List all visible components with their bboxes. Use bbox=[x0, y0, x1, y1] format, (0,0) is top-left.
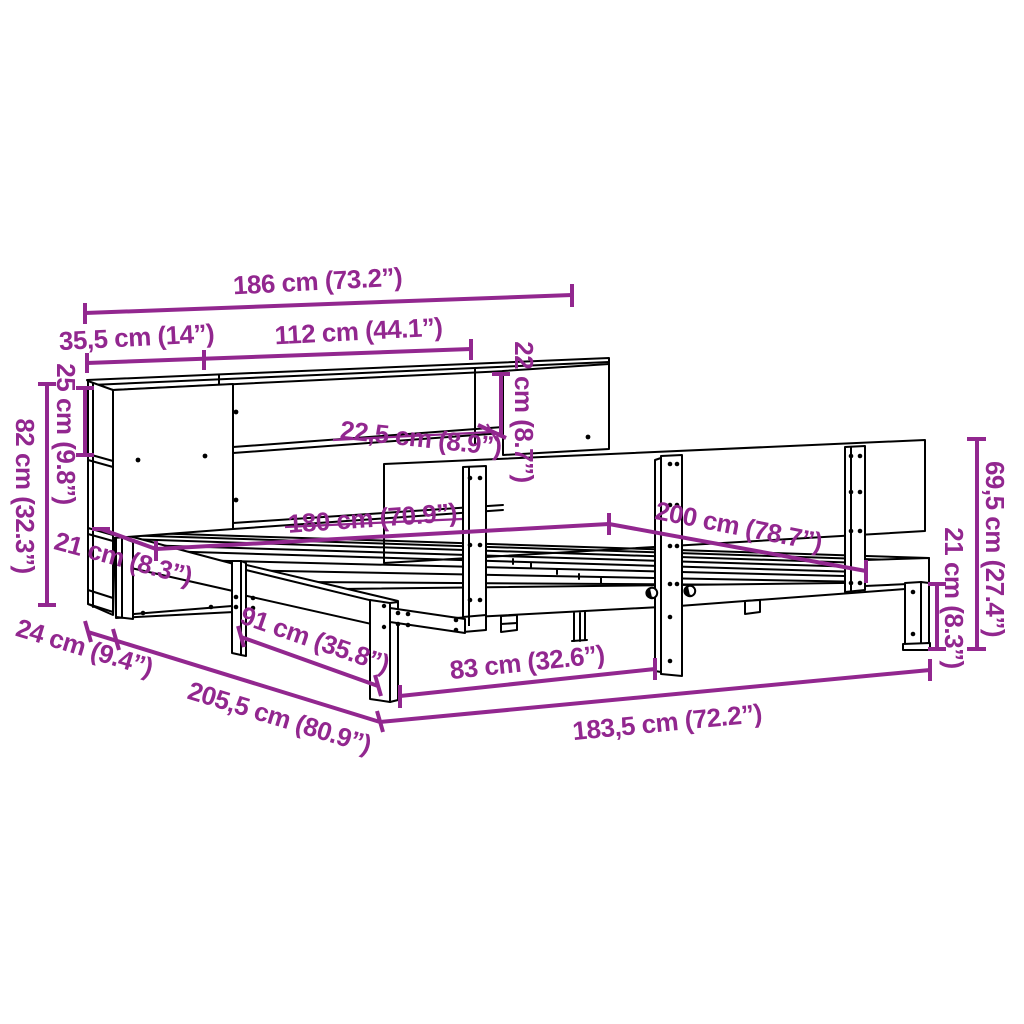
svg-text:82 cm (32.3”): 82 cm (32.3”) bbox=[10, 418, 40, 573]
svg-text:22 cm (8.7”): 22 cm (8.7”) bbox=[509, 341, 539, 482]
svg-text:69,5 cm (27.4”): 69,5 cm (27.4”) bbox=[980, 461, 1010, 637]
svg-text:21 cm (8.3”): 21 cm (8.3”) bbox=[939, 527, 969, 668]
